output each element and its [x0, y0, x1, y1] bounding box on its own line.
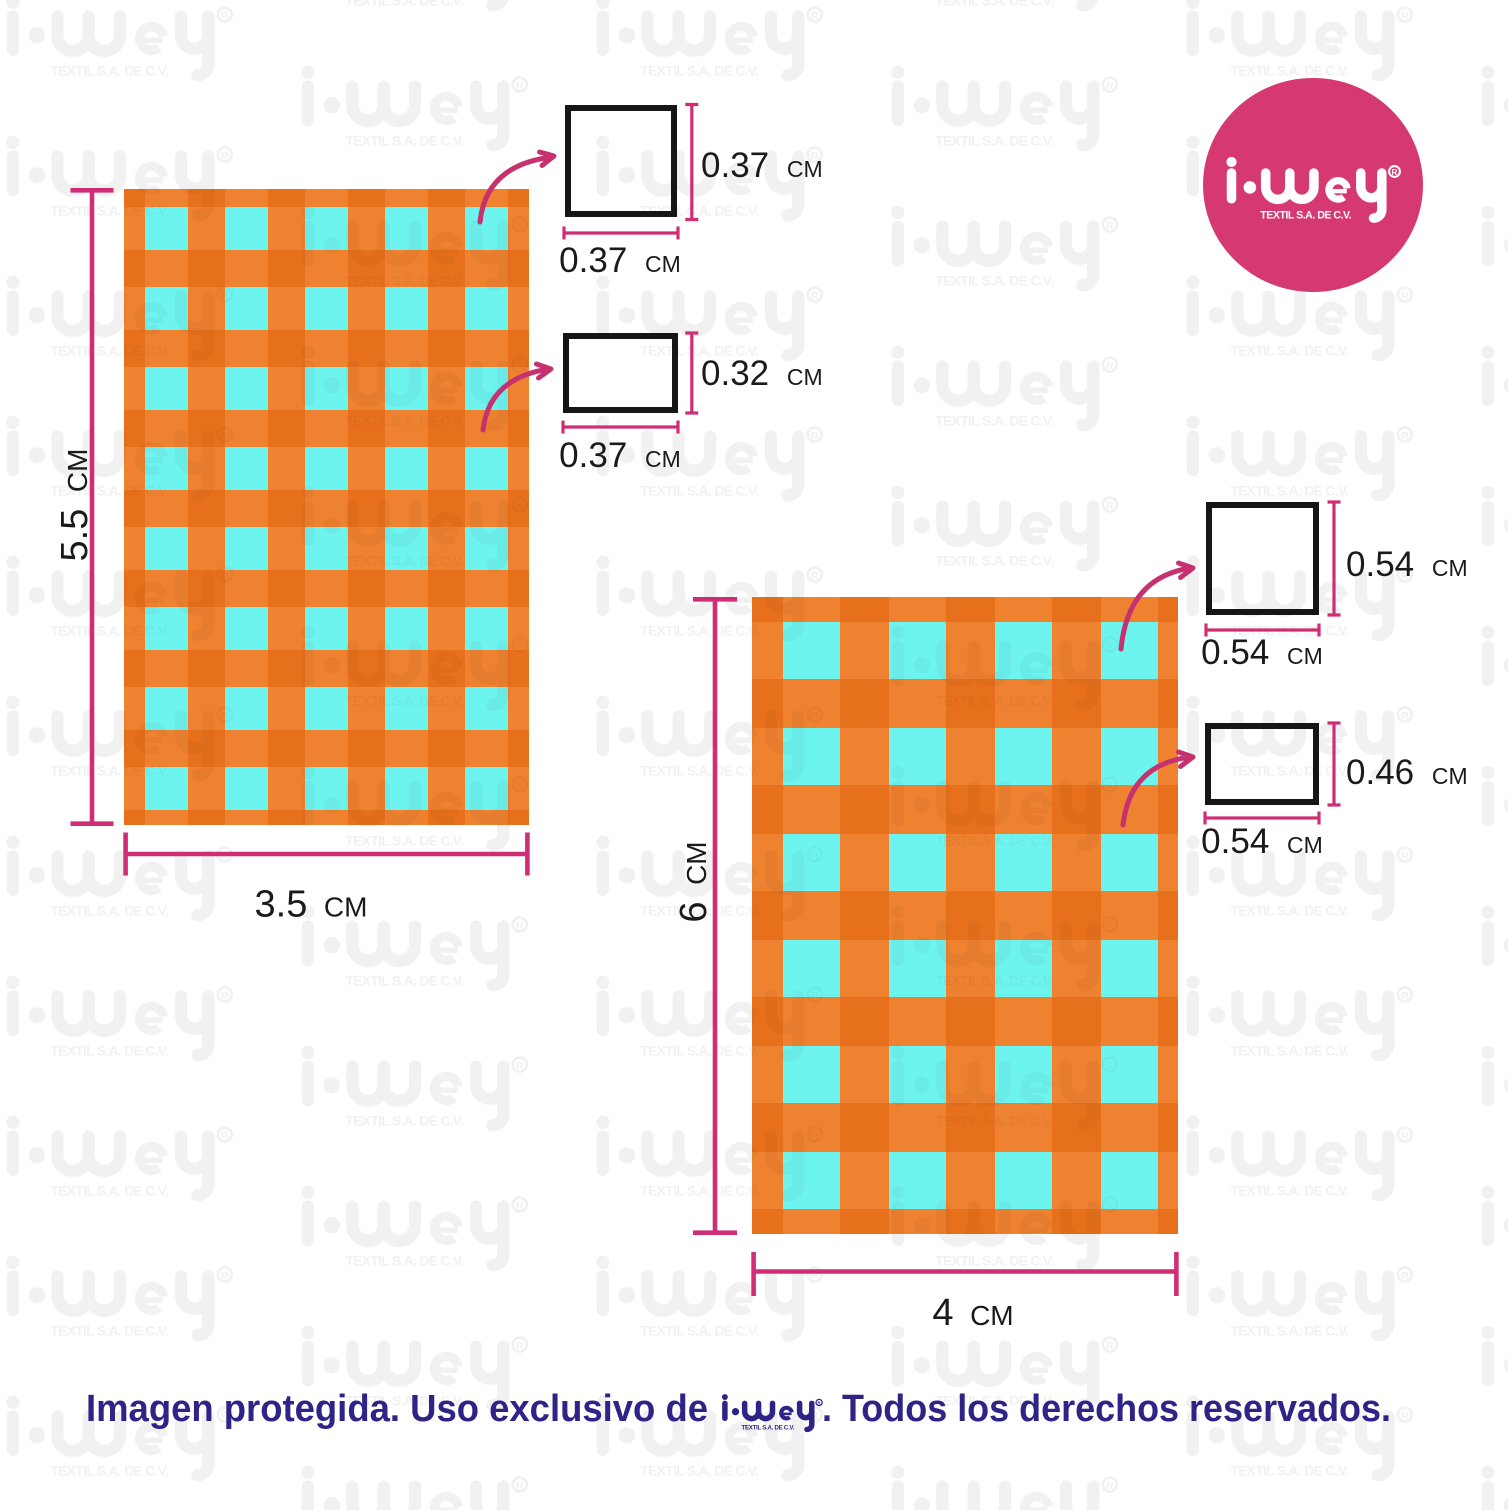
svg-text:Imagen protegida. Uso exclusiv: Imagen protegida. Uso exclusivo de	[86, 1388, 708, 1430]
svg-text:. Todos los derechos reservado: . Todos los derechos reservados.	[822, 1388, 1391, 1430]
